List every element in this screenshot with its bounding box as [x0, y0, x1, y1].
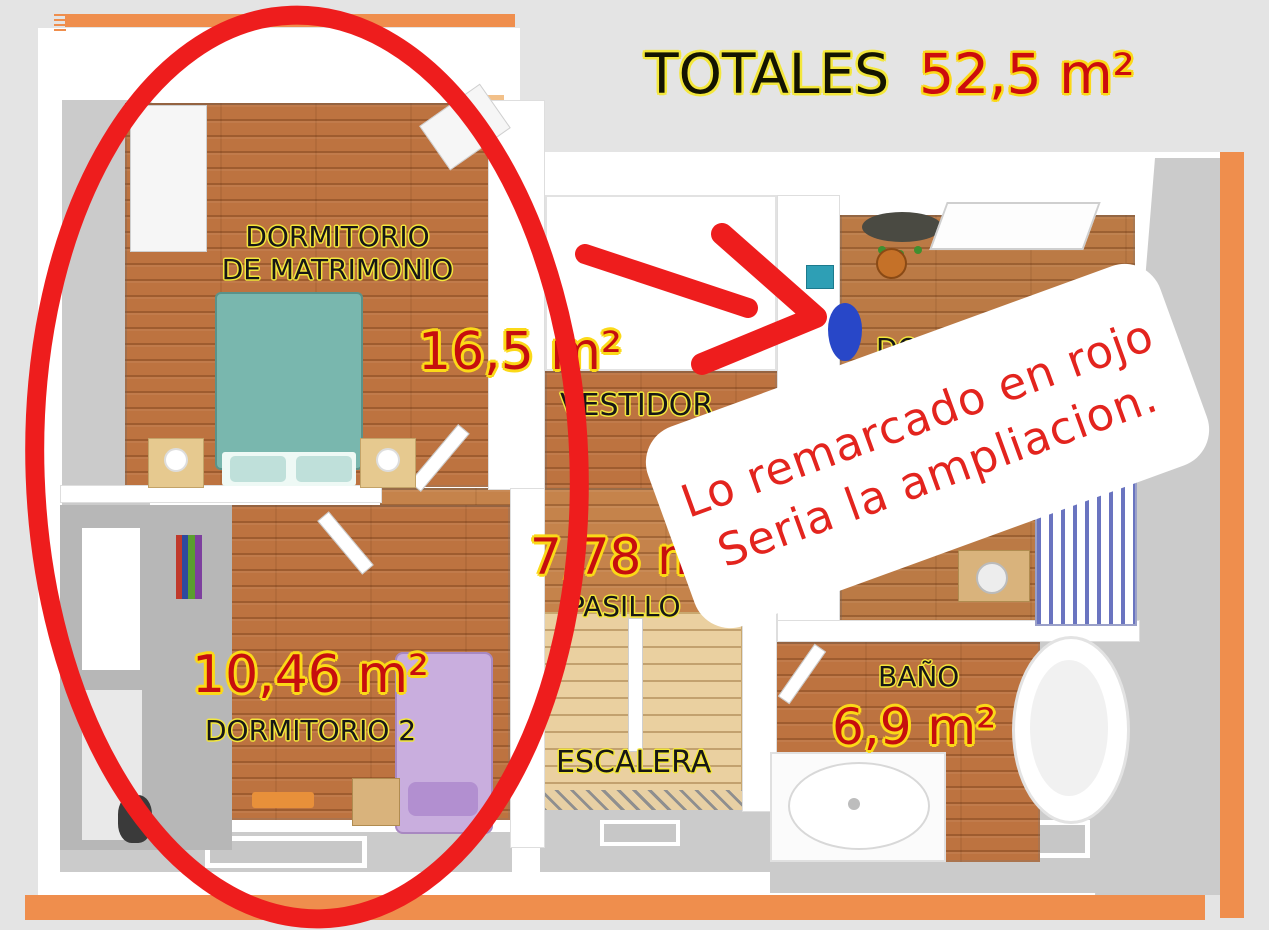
- basketball: [876, 248, 907, 279]
- stairs-hatch-edge: [543, 790, 743, 810]
- fan-pull-3: [914, 246, 922, 254]
- toy-box: [806, 265, 834, 289]
- master-wardrobe: [130, 105, 207, 252]
- master-double-bed: [215, 292, 363, 470]
- floor-plan: TOTALES 52,5 m² DORMITORIO DE MATRIMONIO…: [0, 0, 1269, 930]
- label-stairs: ESCALERA: [556, 745, 711, 780]
- label-hallway: PASILLO: [568, 590, 681, 623]
- cd-disc: [976, 562, 1008, 594]
- roof-hatch-top-left: [54, 14, 66, 34]
- label-bedroom2: DORMITORIO 2: [205, 714, 416, 747]
- stairs-rail: [628, 618, 643, 752]
- totals-title: TOTALES 52,5 m²: [645, 42, 1135, 106]
- bedroom2-bed-pillow: [408, 782, 478, 816]
- roof-edge-bottom: [25, 895, 1205, 920]
- bedroom2-box: [352, 778, 400, 826]
- master-bed-pillow-left: [230, 456, 286, 482]
- bedroom2-bench: [252, 792, 314, 808]
- ceiling-fan: [862, 212, 942, 242]
- bedroom3-skylight: [929, 202, 1100, 250]
- ladybug-toy: [794, 300, 807, 313]
- label-master-bedroom: DORMITORIO DE MATRIMONIO: [210, 220, 465, 286]
- totals-label: TOTALES: [645, 42, 889, 106]
- bedroom2-wardrobe-door: [82, 528, 140, 670]
- nightstand-right-lamp: [378, 450, 398, 470]
- area-bathroom: 6,9 m²: [832, 698, 996, 756]
- area-bedroom2: 10,46 m²: [192, 645, 429, 705]
- wall-master-vestidor: [488, 100, 545, 490]
- label-master-line1: DORMITORIO: [210, 220, 465, 253]
- stairs: [543, 612, 743, 810]
- label-master-line2: DE MATRIMONIO: [210, 253, 465, 286]
- bathtub-basin: [1030, 660, 1108, 796]
- roof-edge-right: [1220, 152, 1244, 918]
- label-vestidor: VESTIDOR: [560, 388, 713, 423]
- roof-edge-top: [65, 14, 515, 27]
- bedroom2-bookshelf: [176, 535, 202, 599]
- wall-master-bedroom2: [60, 485, 382, 503]
- master-bed-pillow-right: [296, 456, 352, 482]
- area-master-bedroom: 16,5 m²: [418, 322, 622, 382]
- roof-slope-below-bath: [770, 860, 1042, 893]
- bedroom2-chair: [118, 795, 152, 843]
- sink-faucet: [848, 798, 860, 810]
- roof-window-center: [600, 820, 680, 846]
- nightstand-left-lamp: [166, 450, 186, 470]
- totals-value: 52,5 m²: [919, 42, 1135, 106]
- label-bathroom: BAÑO: [878, 660, 959, 693]
